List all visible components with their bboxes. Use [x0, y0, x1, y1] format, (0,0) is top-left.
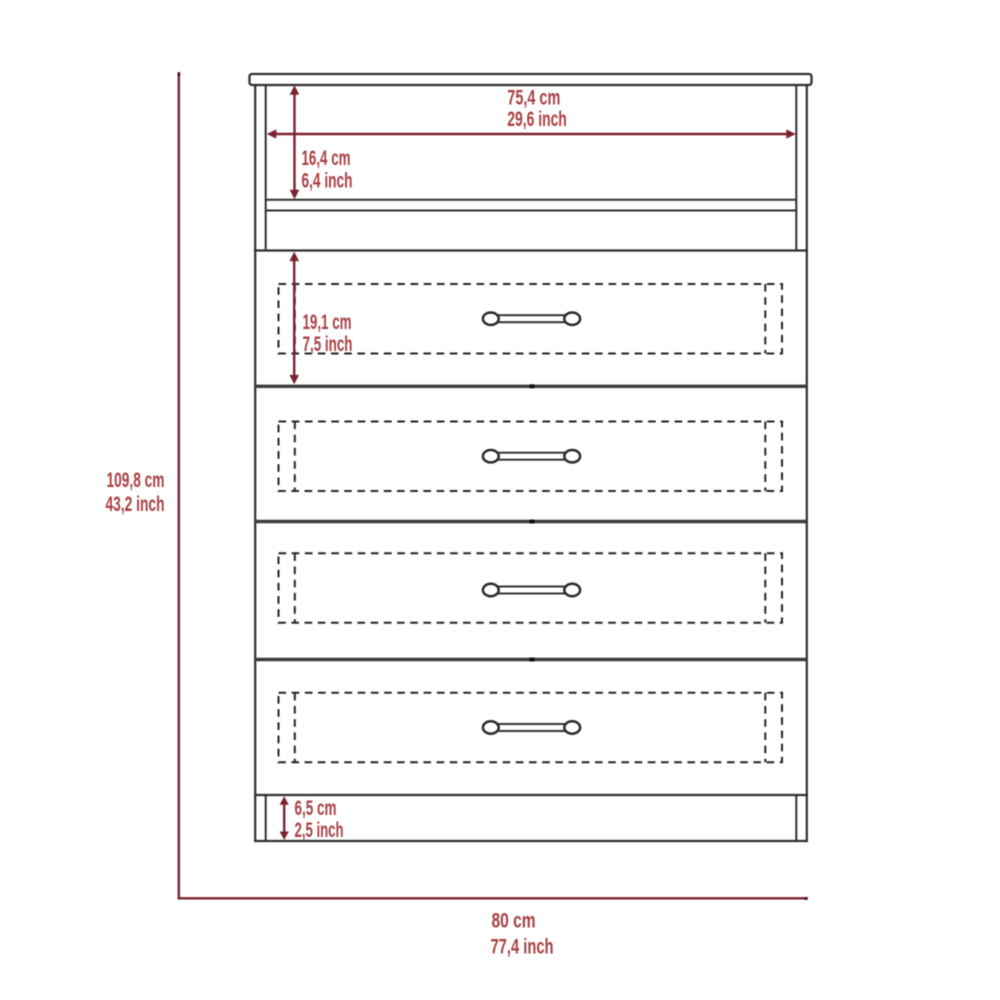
svg-text:29,6 inch: 29,6 inch [507, 108, 567, 131]
svg-text:16,4 cm: 16,4 cm [302, 147, 351, 170]
svg-text:6,4 inch: 6,4 inch [302, 170, 353, 193]
svg-text:6,5 cm: 6,5 cm [295, 797, 337, 820]
svg-text:77,4 inch: 77,4 inch [491, 935, 554, 958]
svg-text:109,8 cm: 109,8 cm [107, 469, 165, 492]
svg-text:7,5 inch: 7,5 inch [303, 333, 353, 356]
svg-text:80 cm: 80 cm [492, 909, 536, 932]
svg-text:75,4 cm: 75,4 cm [507, 86, 560, 109]
svg-text:43,2 inch: 43,2 inch [106, 493, 165, 516]
svg-text:2,5 inch: 2,5 inch [295, 819, 344, 842]
svg-text:19,1 cm: 19,1 cm [303, 311, 352, 334]
